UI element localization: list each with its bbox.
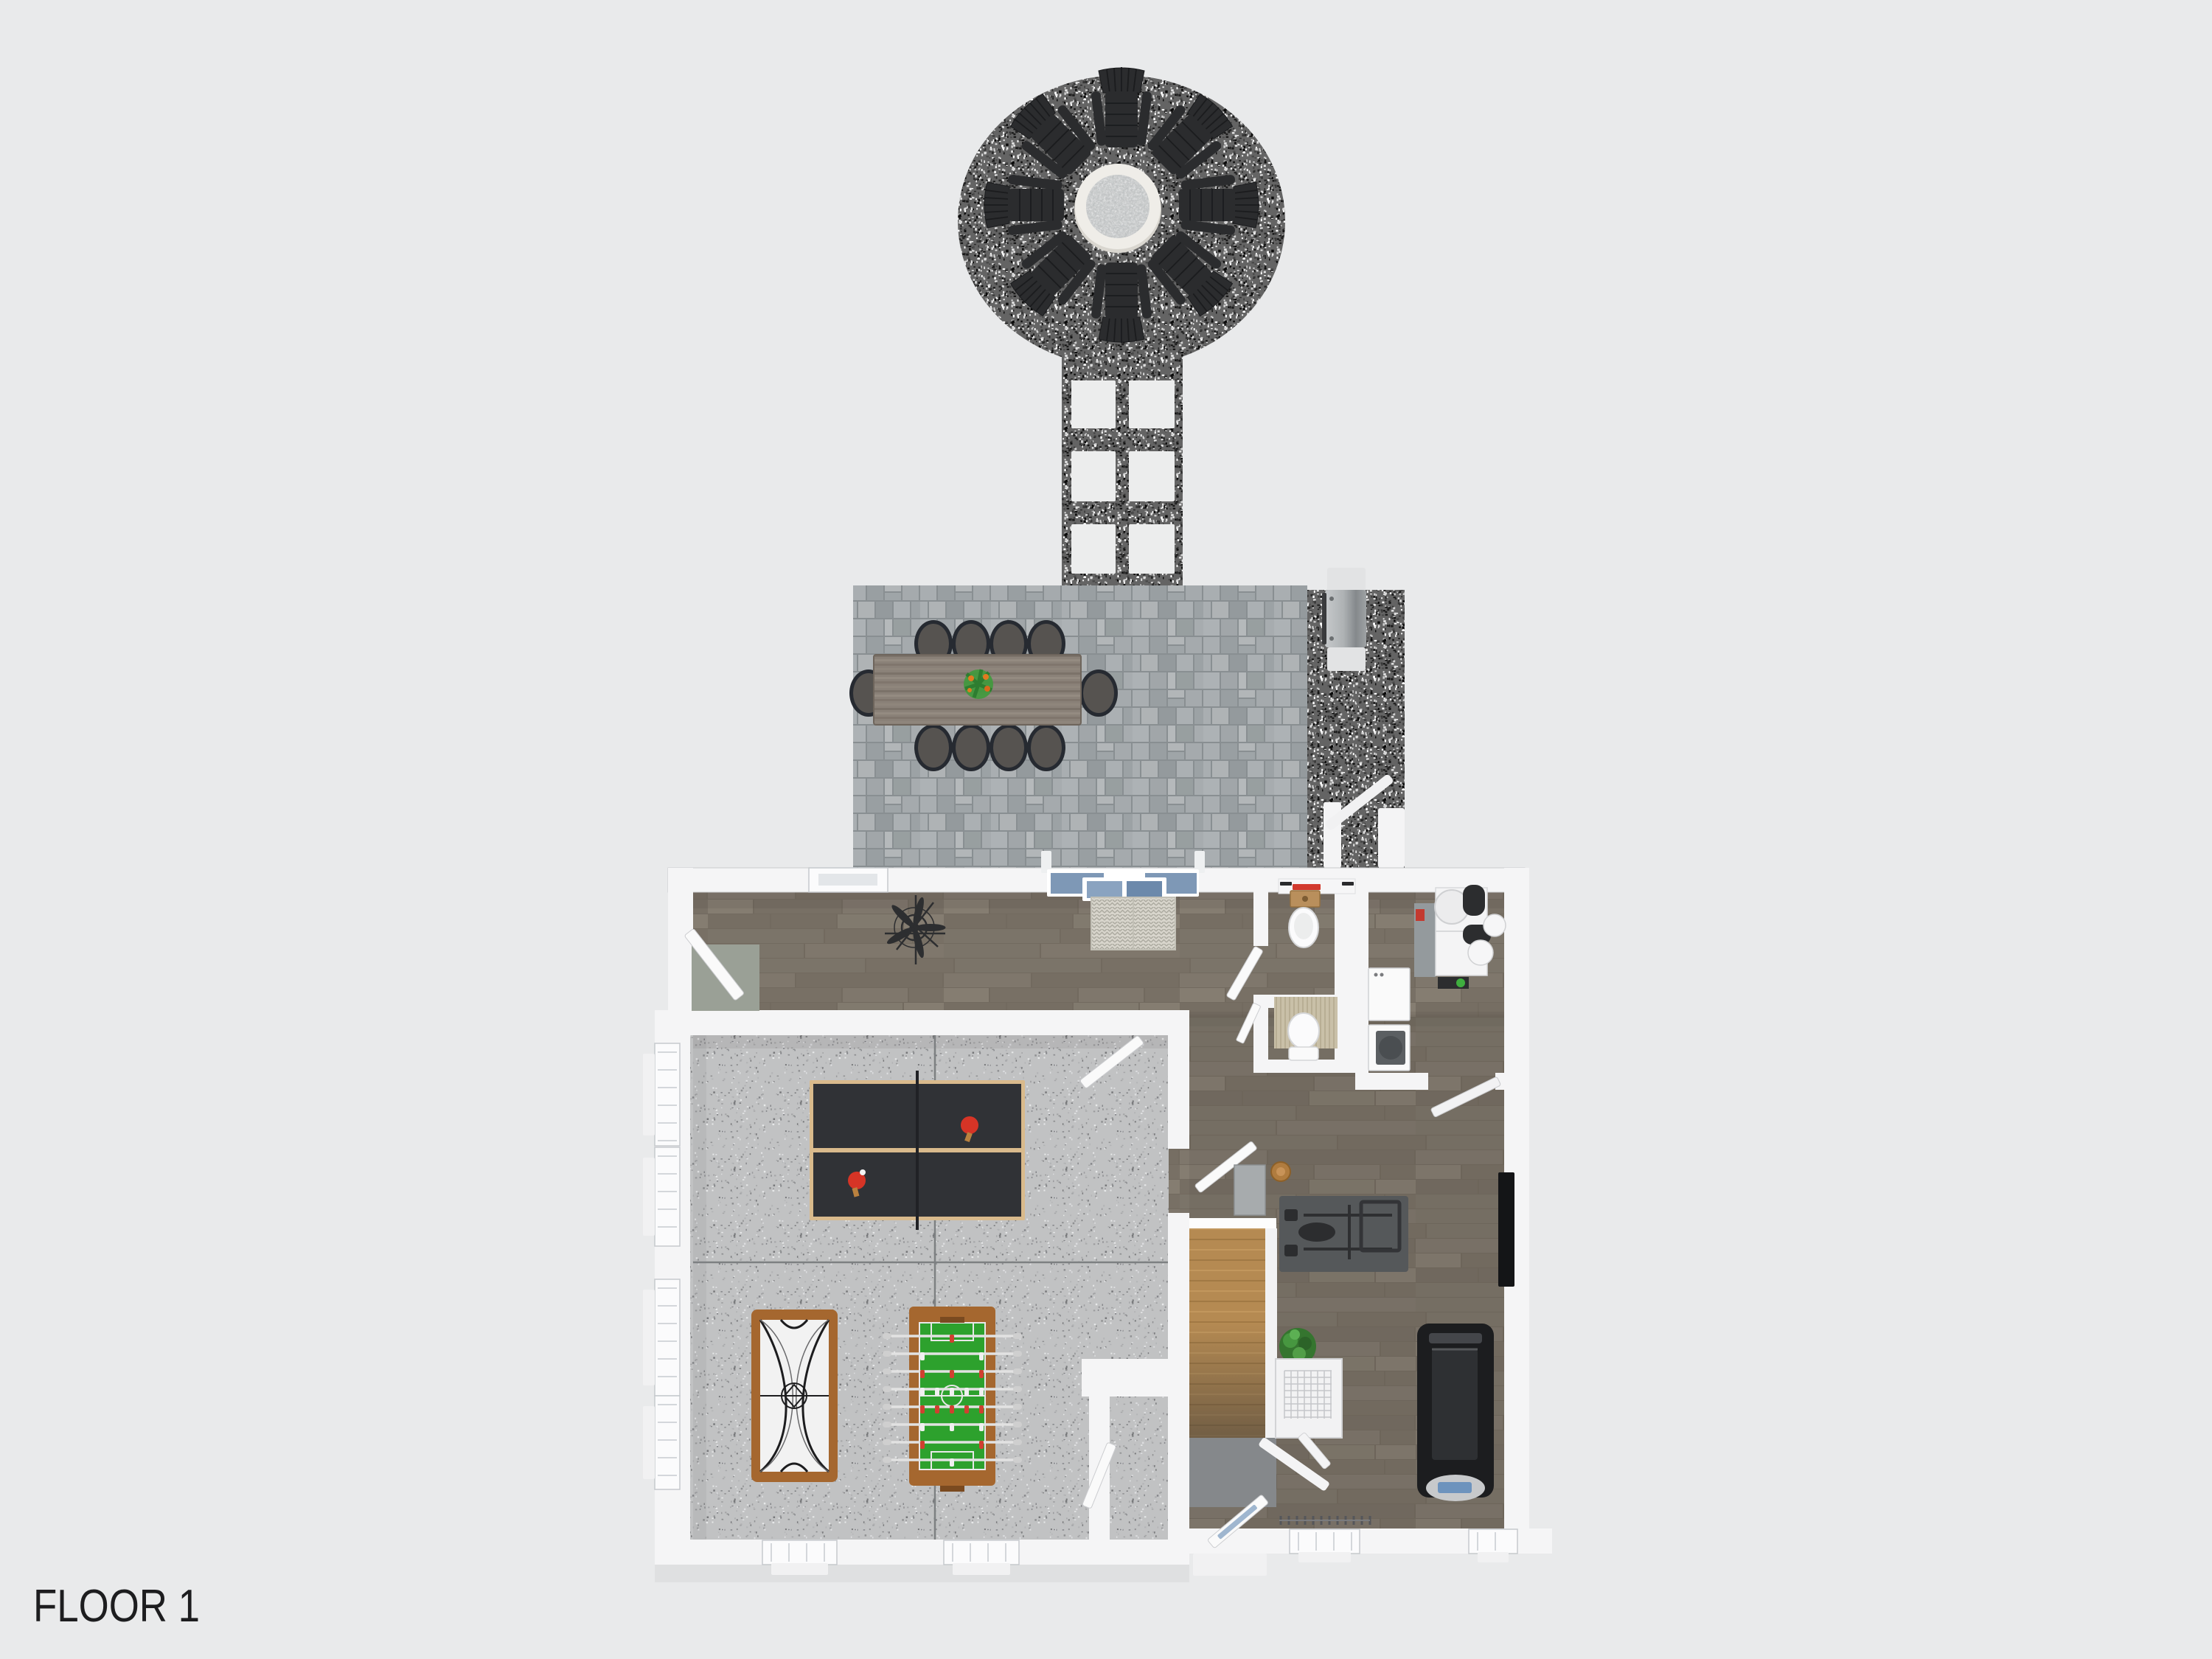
svg-text:FLOOR 1: FLOOR 1: [33, 1581, 200, 1632]
